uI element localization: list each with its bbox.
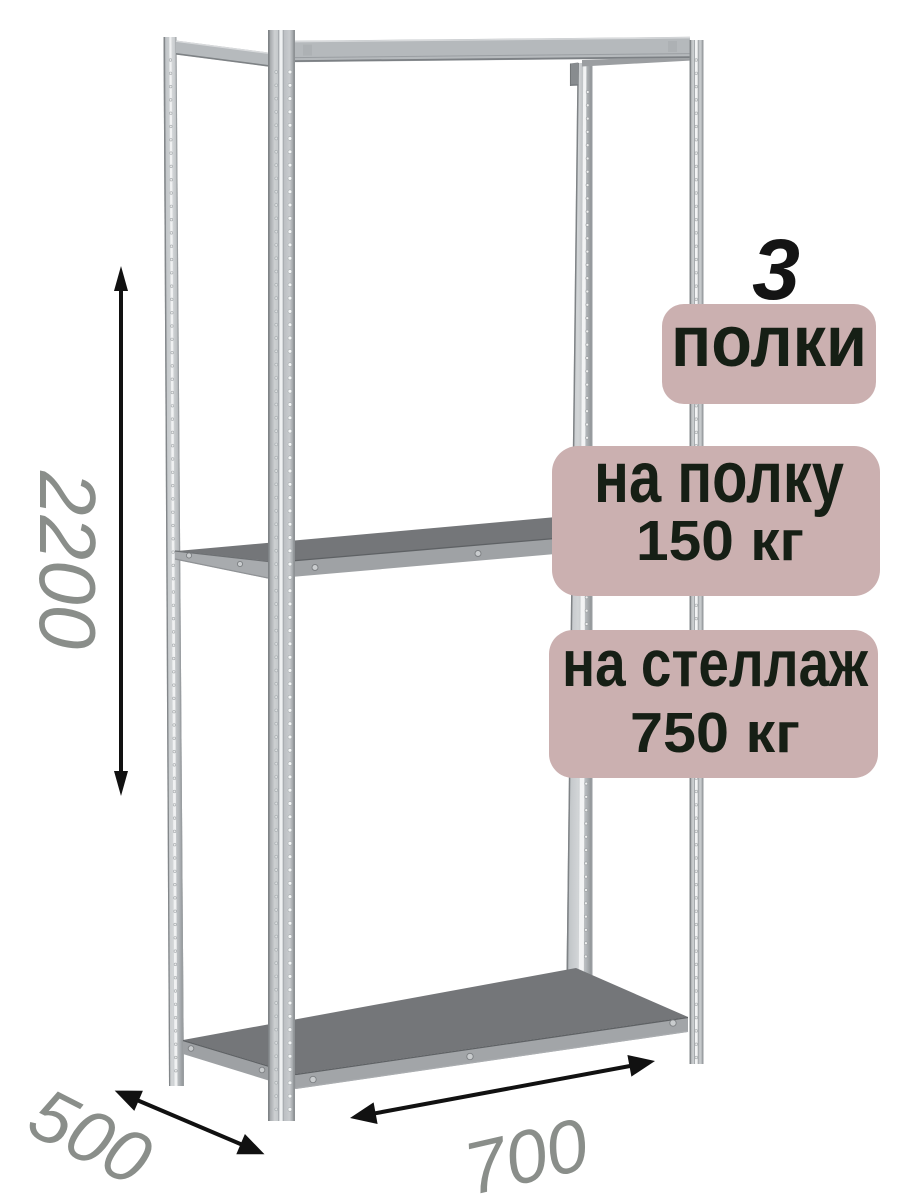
svg-text:750 кг: 750 кг (630, 701, 800, 765)
svg-text:на полку: на полку (594, 438, 844, 518)
svg-text:на стеллаж: на стеллаж (562, 626, 869, 700)
svg-text:2200: 2200 (23, 470, 112, 649)
svg-text:150 кг: 150 кг (636, 509, 804, 573)
svg-text:полки: полки (671, 302, 867, 382)
svg-text:700: 700 (457, 1102, 596, 1200)
